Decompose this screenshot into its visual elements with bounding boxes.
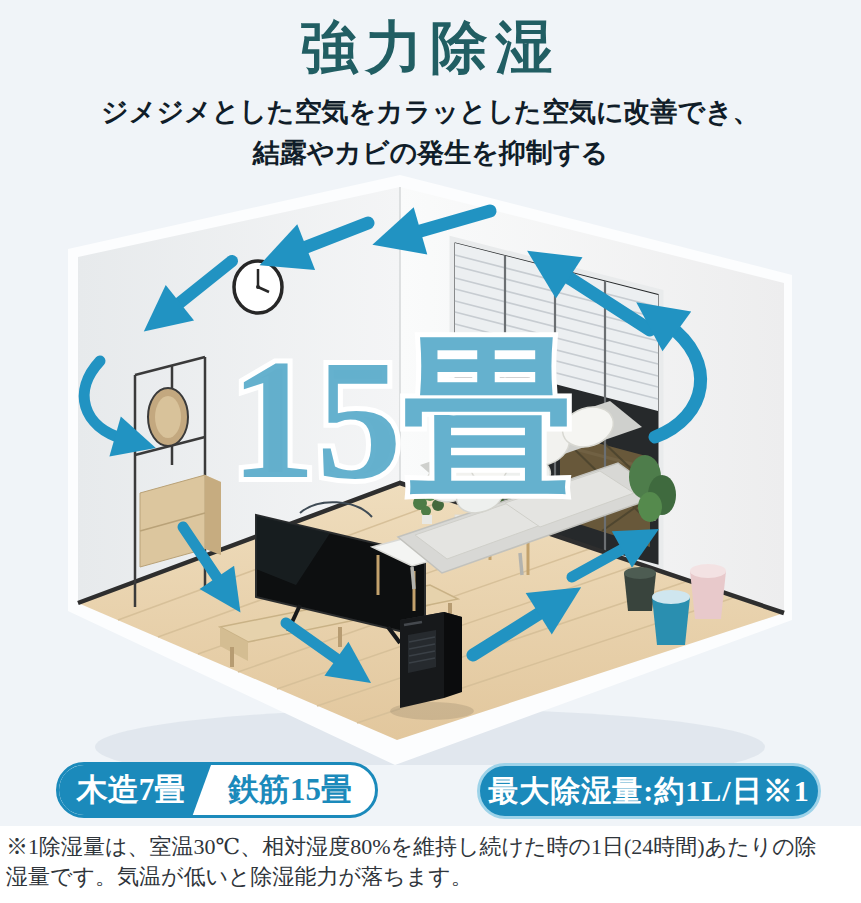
ad-page: 強力除湿 ジメジメとした空気をカラッとした空気に改善でき、 結露やカビの発生を抑… bbox=[0, 0, 861, 903]
page-title: 強力除湿 bbox=[0, 10, 861, 87]
room-size-label: 15畳 bbox=[230, 324, 574, 514]
badge-wood-label: 木造7畳 bbox=[59, 765, 211, 815]
max-dehumidify-badge: 最大除湿量:約1L/日※1 bbox=[477, 763, 821, 819]
footnote-line-2: 湿量です。気温が低いと除湿能力が落ちます。 bbox=[6, 862, 858, 892]
footnote: ※1除湿量は、室温30℃、相対湿度80%を維持し続けた時の1日(24時間)あたり… bbox=[6, 832, 858, 893]
footnote-line-1: ※1除湿量は、室温30℃、相対湿度80%を維持し続けた時の1日(24時間)あたり… bbox=[6, 832, 858, 862]
room-illustration: 15畳 bbox=[0, 165, 861, 765]
badge-row: 木造7畳 鉄筋15畳 最大除湿量:約1L/日※1 bbox=[0, 762, 861, 820]
capacity-badge-wood-steel: 木造7畳 鉄筋15畳 bbox=[56, 762, 378, 818]
subtitle: ジメジメとした空気をカラッとした空気に改善でき、 結露やカビの発生を抑制する bbox=[0, 92, 861, 174]
wall-clock-icon bbox=[234, 261, 282, 313]
badge-steel-label: 鉄筋15畳 bbox=[211, 769, 375, 811]
subtitle-line-1: ジメジメとした空気をカラッとした空気に改善でき、 bbox=[0, 92, 861, 133]
